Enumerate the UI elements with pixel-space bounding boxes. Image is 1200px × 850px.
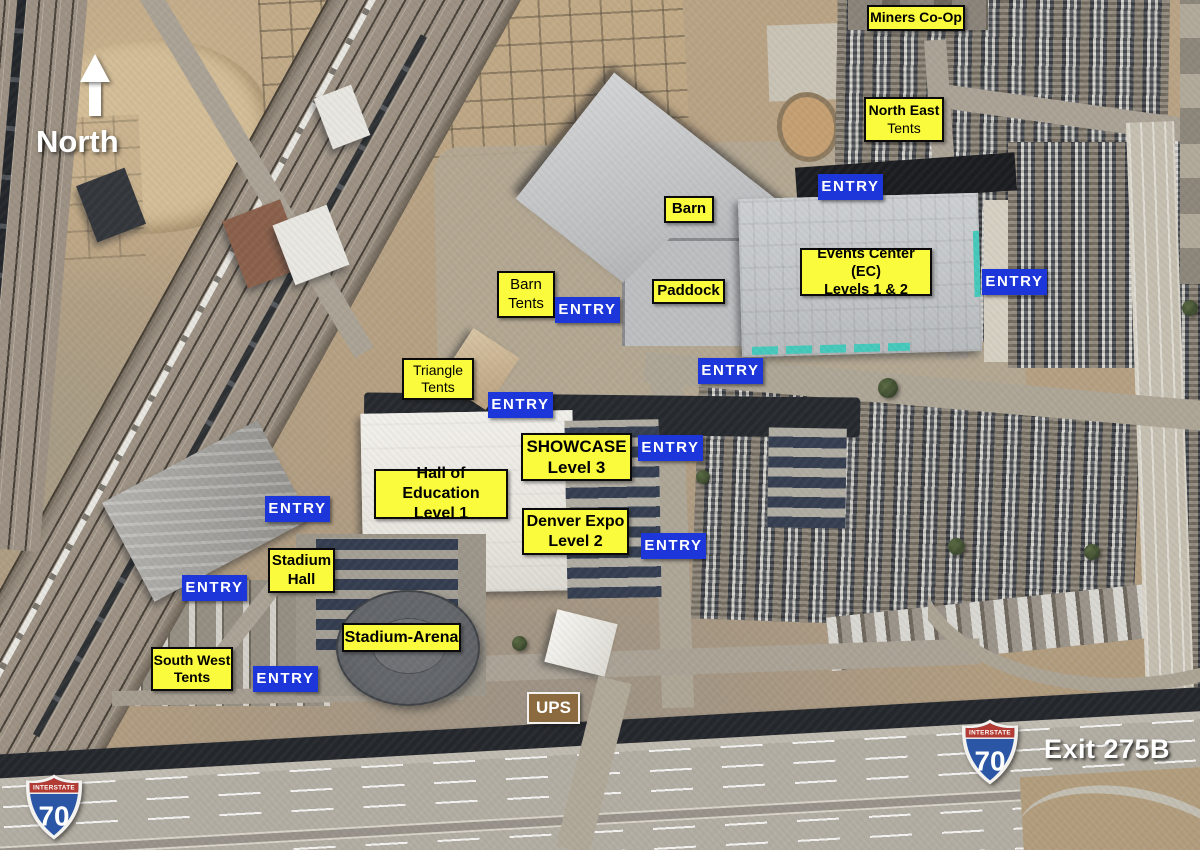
label-stadium-hall: StadiumHall	[268, 548, 335, 593]
label-north-east-tents-text: Tents	[887, 120, 920, 138]
label-barn-tents-text: Tents	[508, 295, 544, 314]
label-barn: Barn	[664, 196, 714, 223]
label-south-west-tents-text: Tents	[174, 669, 210, 687]
entry-badge-8: ENTRY	[265, 496, 330, 522]
interstate-70-shield-east: INTERSTATE 70	[961, 718, 1019, 786]
label-hall-of-education-text: Hall of Education	[376, 464, 506, 504]
label-barn-tents-text: Barn	[510, 276, 542, 295]
label-triangle-tents: TriangleTents	[402, 358, 474, 400]
label-hall-of-education: Hall of EducationLevel 1	[374, 469, 508, 519]
label-denver-expo-text: Denver Expo	[527, 512, 625, 532]
label-ups: UPS	[527, 692, 580, 724]
entry-badge-6: ENTRY	[638, 435, 703, 461]
label-stadium-arena: Stadium-Arena	[342, 623, 461, 652]
shield-route-number: 70	[975, 746, 1006, 777]
label-exit-275b-text: Exit 275B	[1044, 733, 1170, 767]
label-ups-text: UPS	[536, 697, 571, 718]
label-showcase-text: SHOWCASE	[526, 436, 626, 457]
shield-interstate-text: INTERSTATE	[33, 785, 75, 792]
north-arrow-head	[80, 54, 110, 82]
label-stadium-hall-text: Stadium	[272, 552, 331, 571]
entry-badge-9: ENTRY	[182, 575, 247, 601]
label-miners-coop: Miners Co-Op	[867, 5, 965, 31]
entry-badge-10: ENTRY	[253, 666, 318, 692]
north-label: North	[36, 124, 119, 160]
shield-interstate-text: INTERSTATE	[969, 730, 1011, 737]
label-events-center-text: Levels 1 & 2	[824, 281, 908, 299]
entry-badge-3: ENTRY	[555, 297, 620, 323]
entry-badge-7: ENTRY	[641, 533, 706, 559]
label-stadium-hall-text: Hall	[288, 571, 316, 590]
label-events-center: Events Center (EC)Levels 1 & 2	[800, 248, 932, 296]
facility-satellite-map: North INTERSTATE 70 INTERSTATE 70 Miners…	[0, 0, 1200, 850]
label-stadium-arena-text: Stadium-Arena	[345, 628, 459, 648]
shield-band-divider	[25, 793, 83, 794]
north-indicator: North	[30, 52, 170, 167]
label-south-west-tents-text: South West	[154, 652, 231, 670]
entry-badge-2: ENTRY	[982, 269, 1047, 295]
entry-badge-4: ENTRY	[698, 358, 763, 384]
label-miners-coop-text: Miners Co-Op	[870, 9, 962, 27]
label-north-east-tents-text: North East	[869, 102, 940, 120]
north-arrow-icon	[80, 54, 110, 116]
label-paddock: Paddock	[652, 279, 725, 304]
label-showcase: SHOWCASELevel 3	[521, 433, 632, 481]
label-paddock-text: Paddock	[657, 282, 720, 301]
interstate-70-shield-west: INTERSTATE 70	[25, 773, 83, 841]
entry-badge-1: ENTRY	[818, 174, 883, 200]
label-south-west-tents: South WestTents	[151, 647, 233, 691]
label-denver-expo: Denver ExpoLevel 2	[522, 508, 629, 555]
label-exit-275b: Exit 275B	[1032, 731, 1182, 769]
entry-badge-5: ENTRY	[488, 392, 553, 418]
north-arrow-shaft	[89, 82, 101, 116]
label-barn-text: Barn	[672, 200, 706, 219]
label-barn-tents: BarnTents	[497, 271, 555, 318]
shield-route-number: 70	[39, 801, 70, 832]
label-hall-of-education-text: Level 1	[414, 504, 468, 524]
labels-layer: Miners Co-OpNorth EastTentsBarnBarnTents…	[0, 0, 1200, 850]
label-triangle-tents-text: Tents	[421, 379, 454, 397]
label-events-center-text: Events Center (EC)	[802, 245, 930, 281]
shield-band-divider	[961, 738, 1019, 739]
label-triangle-tents-text: Triangle	[413, 362, 463, 380]
label-north-east-tents: North EastTents	[864, 97, 944, 142]
label-denver-expo-text: Level 2	[548, 532, 602, 552]
label-showcase-text: Level 3	[548, 457, 606, 478]
